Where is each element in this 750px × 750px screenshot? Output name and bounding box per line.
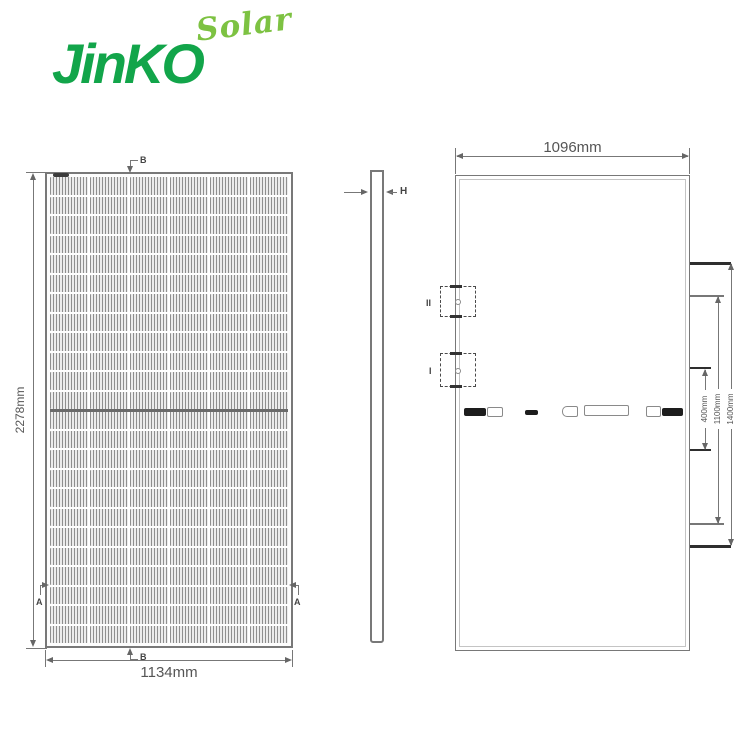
section-a-label-left: A [36, 597, 43, 607]
solar-cell [130, 236, 168, 254]
front-width-dim: 1134mm [45, 664, 293, 681]
solar-cell [90, 411, 128, 429]
solar-cell [50, 353, 88, 371]
section-a-leader-right-v [298, 585, 299, 595]
arrow-left-icon [46, 657, 53, 663]
solar-cell [170, 294, 208, 312]
solar-cell [170, 470, 208, 488]
solar-cell [90, 548, 128, 566]
solar-cell [250, 450, 288, 468]
solar-cell [210, 528, 248, 546]
solar-cell [90, 489, 128, 507]
solar-cell [90, 197, 128, 215]
solar-cell [90, 275, 128, 293]
ext-line-bottom [26, 648, 47, 649]
mount-rail-line [690, 545, 731, 548]
mc4-connector-icon [662, 408, 683, 416]
arrow-up-icon [702, 369, 708, 376]
solar-cell [210, 314, 248, 332]
solar-cell [130, 314, 168, 332]
solar-cell [90, 567, 128, 585]
solar-cell [210, 587, 248, 605]
solar-cell [130, 372, 168, 390]
solar-cell [250, 236, 288, 254]
solar-cell [130, 411, 168, 429]
section-b-label-top: B [140, 155, 147, 165]
brand-sub-wordmark: Solar [194, 4, 293, 47]
mc4-connector-icon [464, 408, 486, 416]
solar-cell [170, 255, 208, 273]
solar-cell [90, 177, 128, 195]
solar-cell [130, 450, 168, 468]
arrow-up-icon [127, 648, 133, 655]
solar-cell [50, 294, 88, 312]
solar-cell [210, 431, 248, 449]
solar-cell [90, 333, 128, 351]
drawing-canvas: JinKO Solar 2278mm 1134mm B B A A H [0, 0, 750, 750]
mount-rail-line [690, 262, 731, 265]
logo-sub: Solar [196, 10, 292, 41]
solar-cell [170, 333, 208, 351]
connector-icon [562, 406, 578, 417]
arrow-right-icon [285, 657, 292, 663]
solar-cell [250, 411, 288, 429]
solar-cell [50, 470, 88, 488]
solar-cell [90, 509, 128, 527]
connector-barrel-icon [487, 407, 503, 417]
solar-cell [90, 626, 128, 644]
solar-cell [250, 353, 288, 371]
solar-cell [50, 372, 88, 390]
solar-cell [50, 392, 88, 410]
solar-cell [130, 509, 168, 527]
solar-cell [250, 470, 288, 488]
solar-cell [50, 567, 88, 585]
solar-cell [210, 372, 248, 390]
solar-cell [50, 626, 88, 644]
solar-cell [50, 587, 88, 605]
arrow-right-icon [42, 582, 49, 588]
dim-1400-label: 1400mm [726, 389, 736, 429]
solar-cell [90, 470, 128, 488]
solar-cell [250, 314, 288, 332]
solar-cell [130, 197, 168, 215]
solar-cell [210, 411, 248, 429]
solar-cell [250, 548, 288, 566]
arrow-down-icon [702, 443, 708, 450]
solar-cell [170, 275, 208, 293]
solar-cell [170, 528, 208, 546]
solar-cell [210, 216, 248, 234]
solar-cell [210, 255, 248, 273]
solar-cell [50, 606, 88, 624]
solar-cell [210, 236, 248, 254]
frame-tick [450, 385, 462, 388]
solar-cell [50, 177, 88, 195]
solar-cell [210, 392, 248, 410]
solar-cell [210, 333, 248, 351]
solar-cell [210, 353, 248, 371]
section-b-label-bottom: B [140, 652, 147, 662]
solar-cell [90, 372, 128, 390]
frame-tick [450, 352, 462, 355]
solar-cell [250, 294, 288, 312]
solar-cell [170, 626, 208, 644]
solar-cell [250, 197, 288, 215]
solar-cell [170, 411, 208, 429]
solar-cell [50, 216, 88, 234]
dim-line-width [48, 660, 290, 661]
solar-cell [210, 548, 248, 566]
solar-cell [50, 431, 88, 449]
solar-cell [130, 353, 168, 371]
brand-wordmark: JinKO [52, 32, 202, 95]
solar-cell [50, 509, 88, 527]
section-b-leader-bottom-h [130, 659, 138, 660]
solar-cell [210, 509, 248, 527]
solar-cell [210, 489, 248, 507]
solar-cell [130, 489, 168, 507]
arrow-down-icon [715, 517, 721, 524]
solar-cell [90, 528, 128, 546]
section-a-leader-left-v [40, 585, 41, 595]
solar-cell [210, 294, 248, 312]
junction-box-icon [584, 405, 629, 416]
solar-cell [250, 333, 288, 351]
solar-cell [130, 275, 168, 293]
solar-cell [210, 450, 248, 468]
solar-cell [210, 470, 248, 488]
frame-tick [450, 315, 462, 318]
solar-cell [90, 314, 128, 332]
solar-cell [170, 489, 208, 507]
solar-cell [250, 509, 288, 527]
solar-cell [130, 216, 168, 234]
solar-cell [250, 606, 288, 624]
solar-cell [250, 392, 288, 410]
detail-ii-label: II [426, 298, 431, 308]
solar-cell [250, 216, 288, 234]
solar-cell [130, 431, 168, 449]
solar-cell [50, 548, 88, 566]
solar-cell [50, 314, 88, 332]
solar-cell [250, 177, 288, 195]
solar-cell [50, 236, 88, 254]
solar-cell [130, 606, 168, 624]
solar-cell [90, 587, 128, 605]
solar-cell [170, 372, 208, 390]
arrow-up-icon [715, 296, 721, 303]
arrow-down-icon [728, 539, 734, 546]
solar-cell [50, 528, 88, 546]
solar-cell [130, 392, 168, 410]
solar-cell [50, 489, 88, 507]
solar-cell [250, 626, 288, 644]
solar-cell [50, 450, 88, 468]
solar-cell [170, 606, 208, 624]
solar-cell [130, 626, 168, 644]
front-view-panel [45, 172, 293, 648]
solar-cell [90, 216, 128, 234]
solar-cell [90, 255, 128, 273]
dim-400-label: 400mm [700, 390, 710, 428]
frame-logo-mark [53, 173, 69, 177]
solar-cell [50, 411, 88, 429]
solar-cell [170, 548, 208, 566]
solar-cell [210, 606, 248, 624]
solar-cell [210, 567, 248, 585]
arrow-down-icon [127, 166, 133, 173]
solar-cell [250, 275, 288, 293]
frame-tick [450, 285, 462, 288]
solar-cell [90, 431, 128, 449]
solar-cell [90, 392, 128, 410]
h-leader-right [390, 192, 397, 193]
solar-cell [50, 333, 88, 351]
side-view-panel [370, 170, 384, 643]
detail-i-label: I [429, 366, 432, 376]
solar-cell [130, 255, 168, 273]
arrow-left-icon [289, 582, 296, 588]
solar-cell [50, 197, 88, 215]
solar-cell [90, 353, 128, 371]
section-b-leader-top-h [130, 160, 138, 161]
solar-cell [90, 294, 128, 312]
mounting-hole-icon [455, 299, 461, 305]
solar-cell [210, 197, 248, 215]
mounting-hole-icon [455, 368, 461, 374]
solar-cell [170, 177, 208, 195]
solar-cell [130, 470, 168, 488]
solar-cell [250, 528, 288, 546]
solar-cell [210, 626, 248, 644]
solar-cell [90, 450, 128, 468]
solar-cell [250, 587, 288, 605]
solar-cell [50, 275, 88, 293]
solar-cell [130, 528, 168, 546]
solar-cell [170, 431, 208, 449]
half-cell-divider [50, 409, 288, 412]
arrow-up-icon [30, 173, 36, 180]
solar-cell [130, 567, 168, 585]
solar-cell [130, 294, 168, 312]
thickness-label: H [400, 186, 407, 197]
solar-cell [130, 548, 168, 566]
connector-barrel-icon [646, 406, 661, 417]
arrow-down-icon [30, 640, 36, 647]
dim-line-back-width [457, 156, 688, 157]
solar-cell [170, 353, 208, 371]
front-height-dim: 2278mm [13, 379, 27, 441]
solar-cell [170, 216, 208, 234]
dim-1100-label: 1100mm [713, 389, 723, 429]
logo: JinKO [52, 36, 202, 92]
solar-cell [170, 392, 208, 410]
solar-cell [50, 255, 88, 273]
solar-cell [130, 333, 168, 351]
solar-cell [250, 489, 288, 507]
solar-cell [250, 255, 288, 273]
back-width-dim: 1096mm [455, 139, 690, 156]
solar-cell [250, 567, 288, 585]
solar-cell [250, 431, 288, 449]
solar-cell [130, 587, 168, 605]
solar-cell [250, 372, 288, 390]
section-a-label-right: A [294, 597, 301, 607]
arrow-up-icon [728, 263, 734, 270]
solar-cell [90, 606, 128, 624]
solar-cell [90, 236, 128, 254]
solar-cell [210, 177, 248, 195]
cable-clip-icon [525, 410, 538, 415]
solar-cell [130, 177, 168, 195]
solar-cell [170, 314, 208, 332]
solar-cell [170, 587, 208, 605]
solar-cell [210, 275, 248, 293]
solar-cell [170, 197, 208, 215]
dim-line-height [33, 177, 34, 643]
solar-cell [170, 567, 208, 585]
solar-cell [170, 236, 208, 254]
solar-cell [170, 509, 208, 527]
solar-cell [170, 450, 208, 468]
arrow-right-icon [361, 189, 368, 195]
